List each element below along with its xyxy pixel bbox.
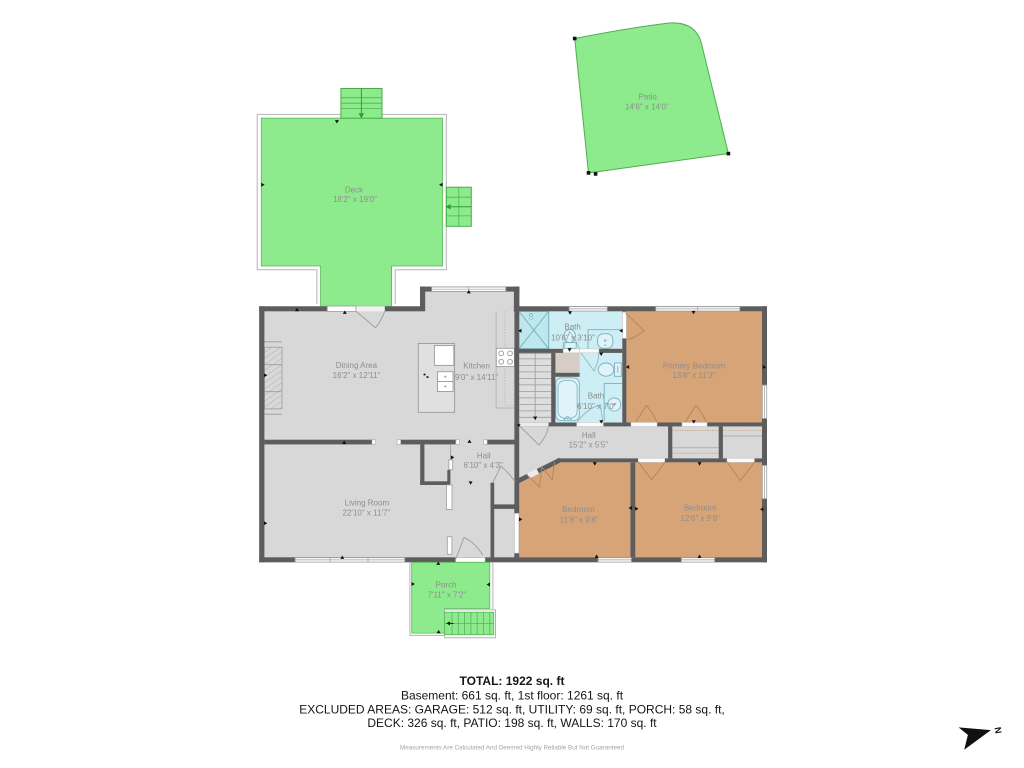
- svg-text:Dining Area: Dining Area: [336, 361, 378, 370]
- svg-text:Deck: Deck: [345, 185, 364, 194]
- svg-text:Kitchen: Kitchen: [463, 362, 490, 371]
- svg-text:Hall: Hall: [477, 452, 491, 461]
- svg-text:Bath: Bath: [564, 323, 580, 332]
- svg-text:Patio: Patio: [639, 93, 658, 102]
- svg-text:Primary Bedroom: Primary Bedroom: [663, 362, 726, 371]
- svg-text:Hall: Hall: [582, 431, 596, 440]
- svg-text:DECK: 326 sq. ft, PATIO: 198 s: DECK: 326 sq. ft, PATIO: 198 sq. ft, WAL…: [367, 716, 657, 730]
- svg-text:22'10" x 11'7": 22'10" x 11'7": [343, 508, 391, 517]
- svg-text:Bath: Bath: [588, 392, 604, 401]
- svg-text:TOTAL: 1922 sq. ft: TOTAL: 1922 sq. ft: [460, 674, 565, 688]
- svg-text:7'11" x 7'2": 7'11" x 7'2": [427, 590, 466, 599]
- svg-text:Bedroom: Bedroom: [562, 505, 595, 514]
- svg-text:6'10" x 7'0": 6'10" x 7'0": [577, 402, 617, 411]
- svg-text:9'0" x 14'11": 9'0" x 14'11": [455, 373, 498, 382]
- svg-text:16'2" x 12'11": 16'2" x 12'11": [333, 371, 381, 380]
- svg-text:12'6" x 9'8": 12'6" x 9'8": [680, 514, 720, 523]
- svg-text:14'6" x 14'0": 14'6" x 14'0": [625, 103, 669, 112]
- svg-text:10'6" x 3'10": 10'6" x 3'10": [551, 333, 595, 342]
- svg-text:Bedroom: Bedroom: [684, 503, 717, 512]
- svg-text:EXCLUDED AREAS: GARAGE: 512 sq: EXCLUDED AREAS: GARAGE: 512 sq. ft, UTIL…: [299, 703, 724, 717]
- svg-text:15'2" x 5'5": 15'2" x 5'5": [569, 441, 609, 450]
- svg-text:Porch: Porch: [436, 581, 457, 590]
- svg-text:6'10" x 4'3": 6'10" x 4'3": [463, 461, 503, 470]
- svg-text:Basement: 661 sq. ft, 1st floo: Basement: 661 sq. ft, 1st floor: 1261 sq…: [401, 689, 624, 703]
- svg-text:18'2" x 19'0": 18'2" x 19'0": [333, 195, 377, 204]
- svg-text:Measurements Are Calculated An: Measurements Are Calculated And Deemed H…: [400, 745, 625, 752]
- svg-text:Living Room: Living Room: [345, 499, 390, 508]
- svg-text:13'8" x 11'3": 13'8" x 11'3": [672, 371, 715, 380]
- svg-text:11'8" x 9'8": 11'8" x 9'8": [560, 516, 599, 525]
